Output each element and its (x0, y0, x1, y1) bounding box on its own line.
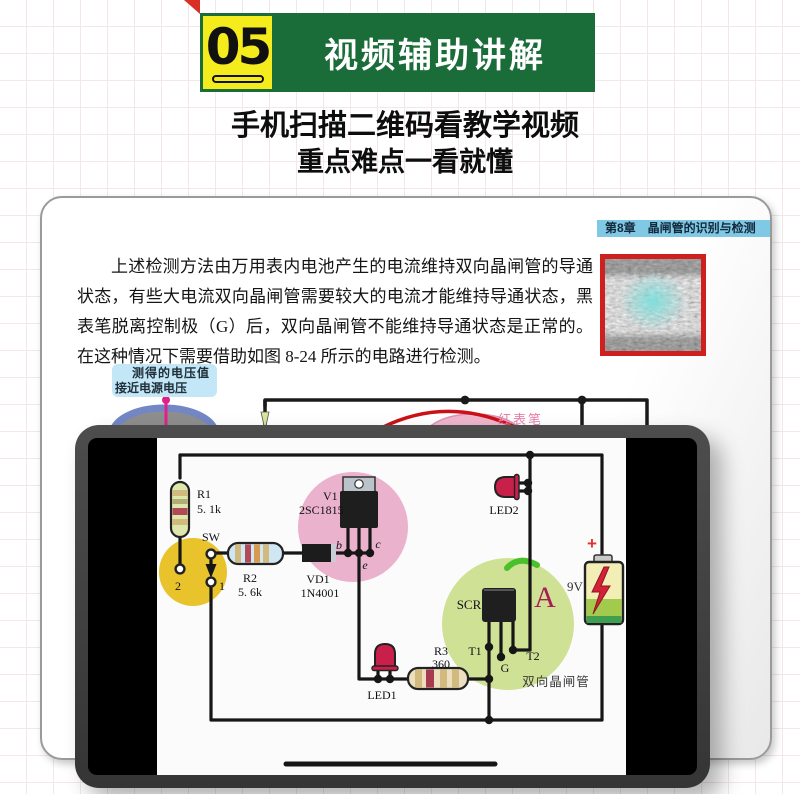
pin-c-dot (366, 549, 374, 557)
r2-name: R2 (243, 571, 257, 585)
tagline-easy: 重点难点一看就懂 (110, 140, 700, 179)
r3-value: 360 (432, 657, 450, 671)
switch-contact-top (207, 550, 216, 559)
vd1-name: VD1 (306, 572, 329, 586)
t1-label: T1 (468, 644, 481, 658)
r1-name: R1 (197, 487, 211, 501)
section-title-banner: 视频辅助讲解 (275, 13, 595, 92)
contact-1-label: 1 (219, 579, 225, 593)
triac-body (482, 588, 516, 622)
led2-label: LED2 (489, 503, 518, 517)
number-underline (212, 75, 264, 83)
pin-c-label: c (375, 537, 381, 551)
r3-name: R3 (434, 644, 448, 658)
v1-value: 2SC1815 (299, 503, 344, 517)
triac-label: 双向晶闸管 (522, 674, 590, 689)
tagline-scan-qr: 手机扫描二维码看教学视频 (110, 102, 700, 144)
led1 (372, 644, 398, 683)
pin-b-dot (344, 549, 352, 557)
r1-value: 5. 1k (197, 502, 221, 516)
top-junction-dot (526, 451, 534, 459)
pin-e-label: e (362, 558, 368, 572)
led1-label: LED1 (367, 688, 396, 702)
promo-page: { "header": { "number": "05", "title": "… (0, 0, 800, 794)
contact-2-label: 2 (175, 579, 181, 593)
corner-ribbon-decor (184, 0, 200, 14)
junction-dot (461, 396, 470, 405)
video-frame: R1 5. 1k SW 2 1 R2 5. 6 (157, 438, 626, 775)
circuit-diagram: R1 5. 1k SW 2 1 R2 5. 6 (157, 438, 626, 775)
g-dot (497, 653, 505, 661)
switch-contact-2 (176, 565, 185, 574)
r2-value: 5. 6k (238, 585, 262, 599)
switch-highlight-circle (159, 538, 227, 606)
led2 (495, 475, 532, 500)
diode-vd1 (302, 544, 336, 562)
ammeter-letter: A (534, 581, 556, 614)
t1-dot (485, 643, 493, 651)
battery-plus-label: + (587, 534, 597, 553)
switch-contact-1 (207, 578, 216, 587)
tablet-device: R1 5. 1k SW 2 1 R2 5. 6 (75, 425, 710, 788)
pin-b-label: b (336, 538, 342, 552)
gate-junction-dot (485, 675, 493, 683)
tablet-screen: R1 5. 1k SW 2 1 R2 5. 6 (88, 438, 697, 775)
t2-label: T2 (526, 649, 539, 663)
g-label: G (501, 661, 510, 675)
resistor-r2 (228, 543, 283, 564)
resistor-r3 (408, 668, 468, 689)
section-number-box: 05 (200, 13, 275, 92)
t2-dot (509, 646, 517, 654)
bottom-junction-dot (485, 716, 493, 724)
resistor-r1 (171, 482, 189, 537)
v1-name: V1 (323, 489, 338, 503)
sw-label: SW (202, 530, 221, 544)
transistor-v1 (340, 477, 378, 528)
pin-e-dot (355, 549, 363, 557)
vd1-value: 1N4001 (301, 586, 340, 600)
section-title: 视频辅助讲解 (324, 28, 546, 77)
callout-line2: 接近电源电压 (115, 381, 214, 396)
voltage-callout: 测得的电压值 接近电源电压 (112, 364, 217, 397)
scr-label: SCR (457, 597, 482, 612)
battery-voltage-label: 9V (567, 579, 584, 594)
section-number: 05 (206, 22, 270, 72)
callout-line1: 测得的电压值 (115, 366, 214, 381)
junction-dot (578, 396, 587, 405)
battery-9v (585, 555, 623, 624)
